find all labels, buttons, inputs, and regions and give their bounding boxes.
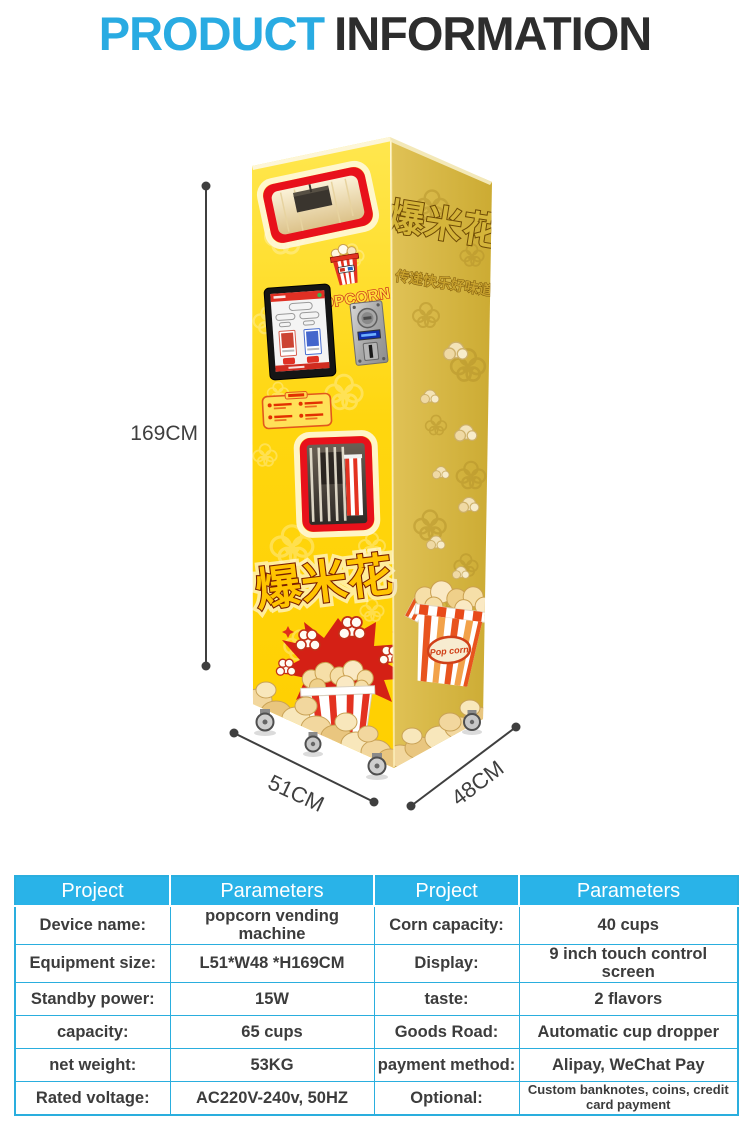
cup-dispenser-window xyxy=(296,433,377,536)
screen-button-left xyxy=(283,357,295,364)
header-parameters-1: Parameters xyxy=(170,876,374,906)
screen-button-right xyxy=(307,356,319,363)
dispensed-cup xyxy=(344,454,364,516)
depth-label: 48CM xyxy=(447,755,509,810)
purchase-steps-panel xyxy=(262,390,332,429)
spec-label: Goods Road: xyxy=(374,1015,519,1048)
spec-label: Standby power: xyxy=(15,982,170,1015)
product-photo: POPCORN xyxy=(0,0,750,860)
spec-label: net weight: xyxy=(15,1048,170,1081)
spec-label: Optional: xyxy=(374,1081,519,1115)
spec-value: 40 cups xyxy=(519,906,738,944)
spec-value: 9 inch touch control screen xyxy=(519,944,738,982)
height-dimension: 169CM xyxy=(130,182,210,671)
vending-machine: POPCORN xyxy=(244,137,503,780)
spec-label: taste: xyxy=(374,982,519,1015)
spec-value: L51*W48 *H169CM xyxy=(170,944,374,982)
height-label: 169CM xyxy=(130,422,198,445)
spec-value: 2 flavors xyxy=(519,982,738,1015)
spec-value: 65 cups xyxy=(170,1015,374,1048)
spec-value: popcorn vending machine xyxy=(170,906,374,944)
spec-value: Automatic cup dropper xyxy=(519,1015,738,1048)
header-parameters-2: Parameters xyxy=(519,876,738,906)
table-row: Standby power: 15W taste: 2 flavors xyxy=(15,982,738,1015)
spec-table-header-row: Project Parameters Project Parameters xyxy=(15,876,738,906)
spec-value: Custom banknotes, coins, credit card pay… xyxy=(519,1081,738,1115)
spec-value: 15W xyxy=(170,982,374,1015)
width-label: 51CM xyxy=(264,769,328,816)
spec-label: payment method: xyxy=(374,1048,519,1081)
header-project-2: Project xyxy=(374,876,519,906)
spec-value: 53KG xyxy=(170,1048,374,1081)
spec-value: Alipay, WeChat Pay xyxy=(519,1048,738,1081)
touch-screen xyxy=(264,284,336,380)
spec-label: Device name: xyxy=(15,906,170,944)
coin-acceptor xyxy=(350,300,388,365)
table-row: capacity: 65 cups Goods Road: Automatic … xyxy=(15,1015,738,1048)
spec-label: Display: xyxy=(374,944,519,982)
table-row: Device name: popcorn vending machine Cor… xyxy=(15,906,738,944)
table-row: net weight: 53KG payment method: Alipay,… xyxy=(15,1048,738,1081)
spec-table: Project Parameters Project Parameters De… xyxy=(14,875,739,1116)
spec-label: Rated voltage: xyxy=(15,1081,170,1115)
table-row: Equipment size: L51*W48 *H169CM Display:… xyxy=(15,944,738,982)
header-project-1: Project xyxy=(15,876,170,906)
spec-value: AC220V-240v, 50HZ xyxy=(170,1081,374,1115)
table-row: Rated voltage: AC220V-240v, 50HZ Optiona… xyxy=(15,1081,738,1115)
spec-label: capacity: xyxy=(15,1015,170,1048)
spec-label: Equipment size: xyxy=(15,944,170,982)
spec-label: Corn capacity: xyxy=(374,906,519,944)
